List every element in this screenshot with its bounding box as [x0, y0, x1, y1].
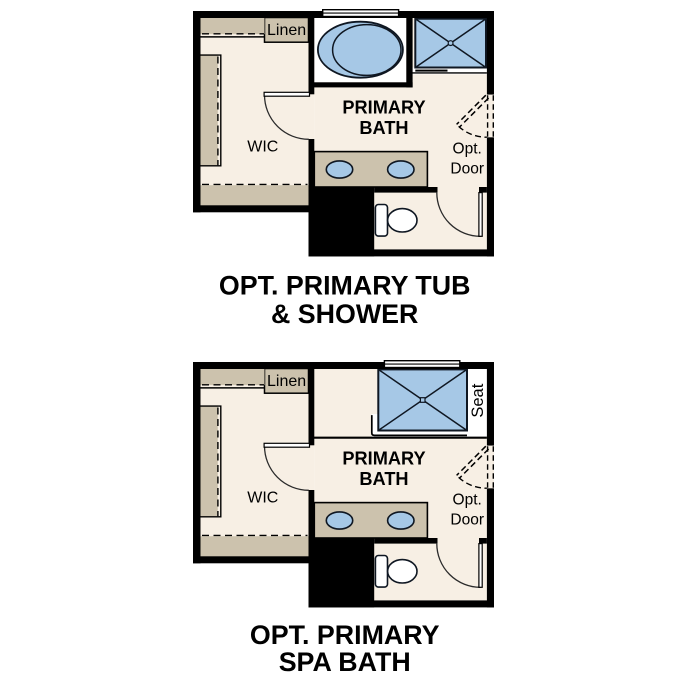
- svg-text:Opt.: Opt.: [453, 141, 482, 158]
- svg-text:BATH: BATH: [359, 118, 408, 138]
- svg-text:OPT. PRIMARY: OPT. PRIMARY: [250, 620, 440, 650]
- svg-text:BATH: BATH: [359, 469, 408, 489]
- svg-text:Door: Door: [450, 512, 484, 529]
- svg-text:Opt.: Opt.: [453, 492, 482, 509]
- svg-text:WIC: WIC: [247, 139, 278, 156]
- svg-text:OPT. PRIMARY TUB: OPT. PRIMARY TUB: [219, 270, 471, 300]
- svg-text:& SHOWER: & SHOWER: [271, 299, 418, 329]
- svg-text:Door: Door: [450, 161, 484, 178]
- svg-text:PRIMARY: PRIMARY: [342, 98, 425, 118]
- svg-text:Linen: Linen: [267, 22, 306, 39]
- svg-text:PRIMARY: PRIMARY: [342, 449, 425, 469]
- svg-text:Linen: Linen: [267, 373, 306, 390]
- svg-text:Seat: Seat: [469, 383, 487, 417]
- svg-text:SPA BATH: SPA BATH: [279, 647, 411, 677]
- svg-text:WIC: WIC: [247, 490, 278, 507]
